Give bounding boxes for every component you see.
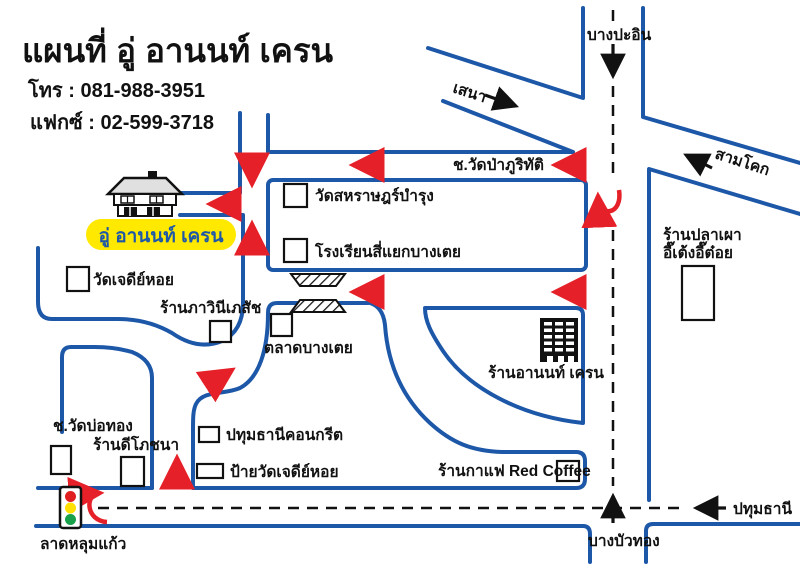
bridge-symbol xyxy=(291,274,345,312)
phone-label: โทร : 081-988-3951 xyxy=(27,78,205,102)
bridge-lower-icon xyxy=(291,300,345,312)
marker-grilled-fish xyxy=(682,266,714,320)
label-coffee: ร้านกาแฟ Red Coffee xyxy=(438,462,591,480)
crane-shop-building-icon xyxy=(540,318,578,362)
marker-pharmacy xyxy=(210,321,231,342)
label-crane-shop: ร้านอานนท์ เครน xyxy=(488,364,604,382)
road-north-left-edge-and-sena-upper xyxy=(428,8,583,98)
destination-label: อู่ อานนท์ เครน xyxy=(99,225,224,248)
marker-restaurant-dee xyxy=(121,457,144,486)
marker-temple-sign xyxy=(197,464,223,478)
road-sena-lower-and-watpa-top xyxy=(268,101,573,152)
marker-market xyxy=(271,314,292,336)
page-title: แผนที่ อู่ อานนท์ เครน xyxy=(22,27,334,72)
destination-highlight: อู่ อานนท์ เครน xyxy=(86,219,236,250)
fax-label: แฟกซ์ : 02-599-3718 xyxy=(30,111,214,134)
label-pharmacy: ร้านภาวินีเภสัช xyxy=(160,299,262,317)
direction-bang-bua-thong: บางบัวทอง xyxy=(588,533,660,550)
garage-house-icon xyxy=(108,171,182,216)
marker-temple-jedi xyxy=(67,267,89,291)
direction-bang-pa-in: บางปะอิน xyxy=(587,26,652,44)
road-se-curve-and-coffee-block xyxy=(193,303,585,488)
arrow-samkhok-icon xyxy=(686,155,712,168)
label-school: โรงเรียนสี่แยกบางเตย xyxy=(314,240,461,261)
direction-sam-khok: สามโคก xyxy=(713,144,773,180)
direction-pathum-thani: ปทุมธานี xyxy=(733,500,792,519)
red-arrow-diagonal-icon xyxy=(212,370,232,383)
direction-lat-lum-kaeo: ลาดหลุมแก้ว xyxy=(40,535,126,554)
marker-bothong xyxy=(51,446,71,474)
label-restaurant-dee: ร้านดีโภชนา xyxy=(93,435,179,454)
label-temple-jedi: วัดเจดีย์หอย xyxy=(93,271,174,289)
street-wat-pa: ช.วัดป่าภูริทัติ xyxy=(453,156,544,176)
arrow-sena-icon xyxy=(485,95,516,106)
map-page: อู่ อานนท์ เครน แผนที่ อู่ อานนท์ เครน โ… xyxy=(0,0,800,580)
label-grilled-fish-1: ร้านปลาเผา xyxy=(663,226,742,244)
map-canvas: อู่ อานนท์ เครน แผนที่ อู่ อานนท์ เครน โ… xyxy=(0,0,800,580)
marker-concrete xyxy=(199,427,219,442)
red-uturn-highway-icon xyxy=(598,190,619,211)
bridge-upper-icon xyxy=(291,274,345,286)
road-samkhok-lower-and-east-edge xyxy=(649,169,800,500)
label-market: ตลาดบางเตย xyxy=(264,340,353,357)
label-temple-saharat: วัดสหราษฎร์บำรุง xyxy=(315,187,434,206)
traffic-light-icon xyxy=(60,487,81,528)
label-concrete: ปทุมธานีคอนกรีต xyxy=(226,426,343,445)
marker-temple-saharat xyxy=(284,184,307,207)
label-temple-sign: ป้ายวัดเจดีย์หอย xyxy=(230,463,339,481)
road-north-right-edge-and-samkhok-upper xyxy=(643,8,800,163)
road-east-bottom-corner xyxy=(646,524,800,562)
street-wat-bothong: ช.วัดบ่อทอง xyxy=(53,418,133,435)
label-grilled-fish-2: อี๊เต้งอี๊ต๋อย xyxy=(663,241,733,262)
direction-sena: เสนา xyxy=(451,80,489,107)
marker-school xyxy=(284,239,307,262)
